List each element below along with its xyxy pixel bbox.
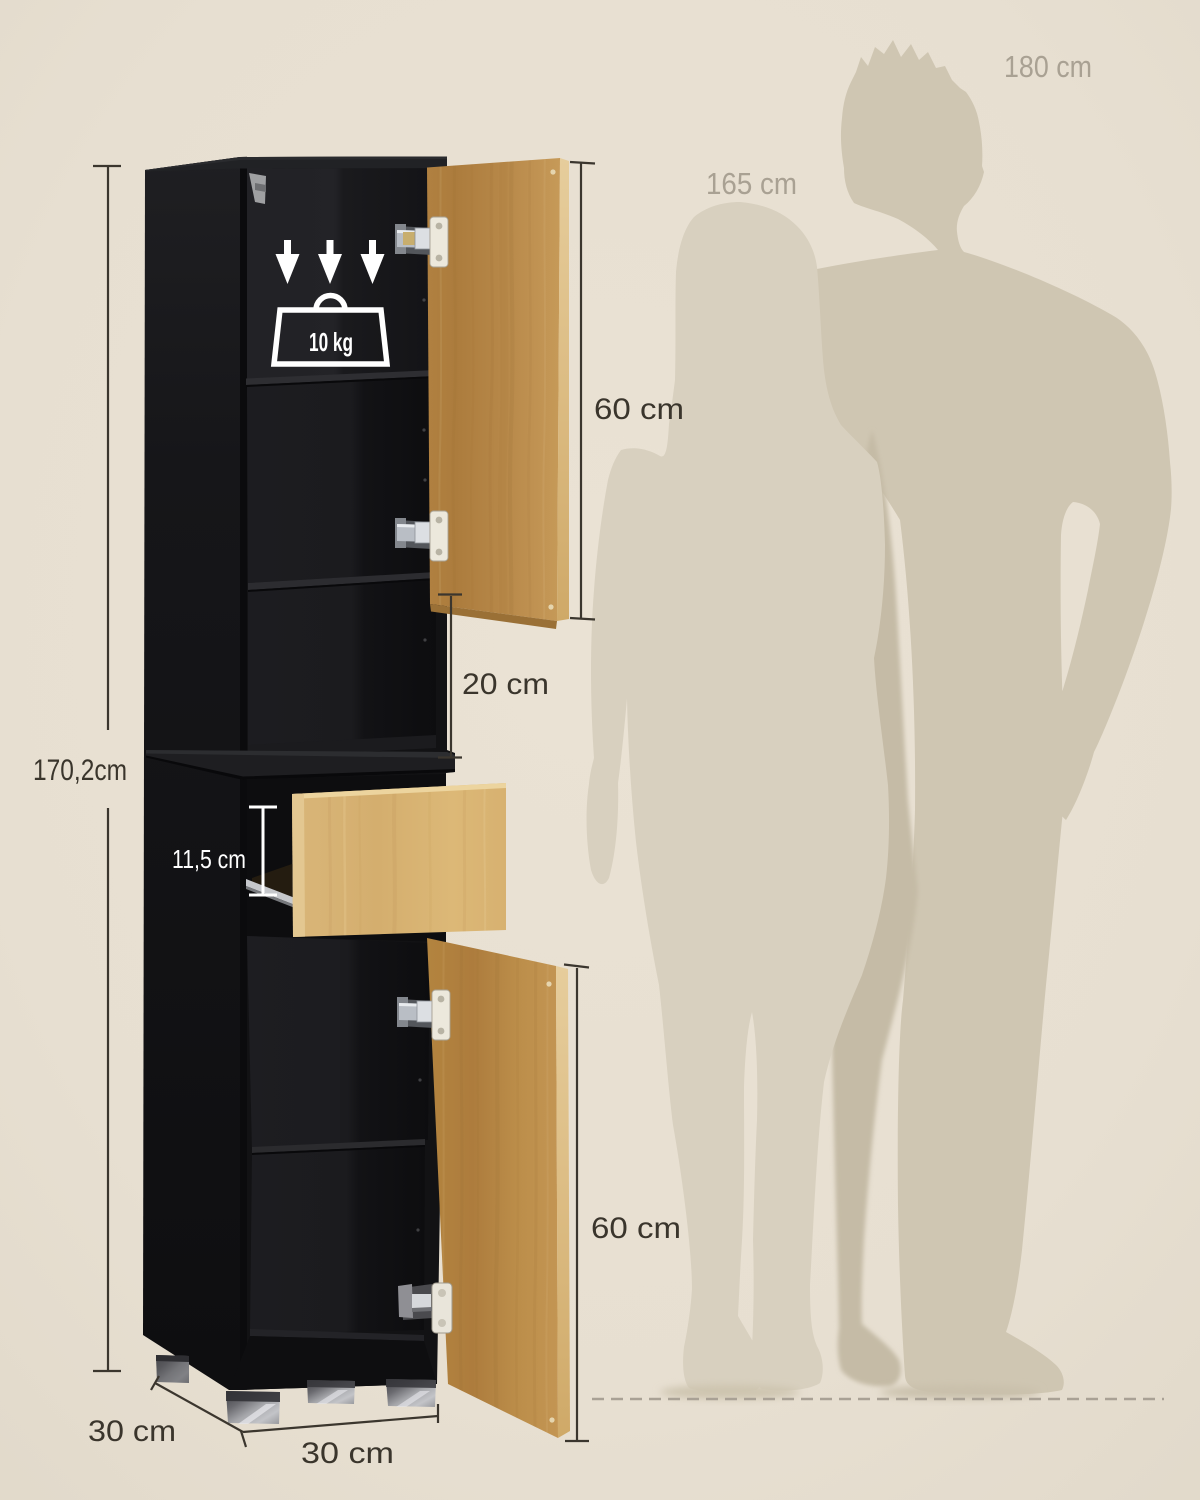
svg-text:165 cm: 165 cm — [706, 166, 797, 201]
svg-text:170,2cm: 170,2cm — [33, 754, 127, 787]
svg-text:11,5 cm: 11,5 cm — [172, 844, 246, 874]
svg-text:30 cm: 30 cm — [301, 1437, 394, 1470]
svg-text:20 cm: 20 cm — [462, 668, 549, 701]
svg-text:60 cm: 60 cm — [594, 393, 684, 426]
svg-text:60 cm: 60 cm — [591, 1212, 681, 1245]
svg-text:180 cm: 180 cm — [1004, 49, 1092, 84]
svg-text:30 cm: 30 cm — [88, 1415, 176, 1448]
svg-text:10 kg: 10 kg — [309, 327, 353, 357]
